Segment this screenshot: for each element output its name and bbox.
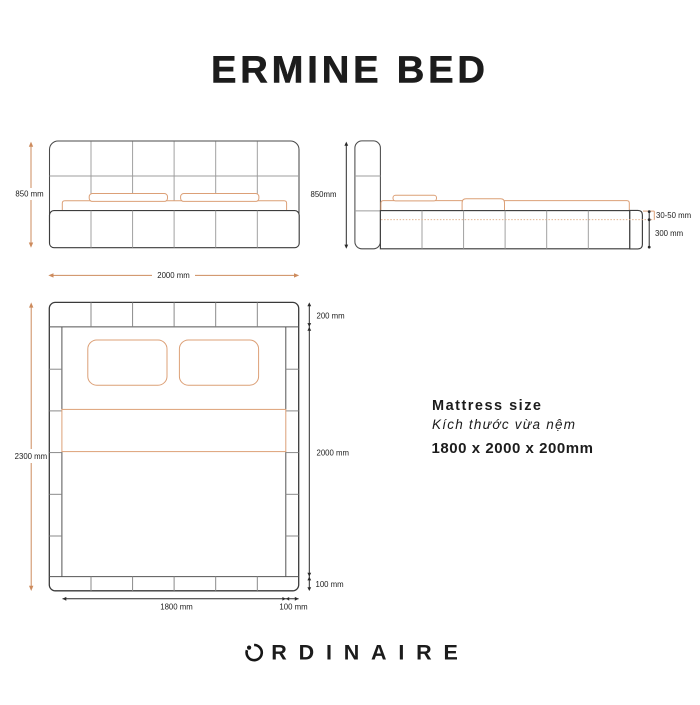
svg-text:100 mm: 100 mm bbox=[279, 602, 307, 611]
svg-text:1800 mm: 1800 mm bbox=[160, 602, 193, 611]
svg-text:300 mm: 300 mm bbox=[655, 229, 683, 238]
svg-text:1800 x 2000 x 200mm: 1800 x 2000 x 200mm bbox=[432, 440, 594, 457]
svg-text:2000 mm: 2000 mm bbox=[317, 449, 350, 458]
svg-text:100 mm: 100 mm bbox=[316, 580, 344, 589]
svg-text:Mattress size: Mattress size bbox=[432, 398, 541, 414]
svg-text:2300 mm: 2300 mm bbox=[15, 452, 48, 461]
svg-text:850 mm: 850 mm bbox=[15, 190, 43, 199]
svg-text:Kích thước vừa nệm: Kích thước vừa nệm bbox=[432, 417, 575, 432]
svg-text:2000 mm: 2000 mm bbox=[157, 271, 190, 280]
svg-text:850mm: 850mm bbox=[311, 190, 337, 199]
svg-text:200 mm: 200 mm bbox=[317, 311, 345, 320]
svg-text:30-50 mm: 30-50 mm bbox=[656, 211, 691, 220]
svg-text:ERMINE BED: ERMINE BED bbox=[211, 49, 485, 92]
